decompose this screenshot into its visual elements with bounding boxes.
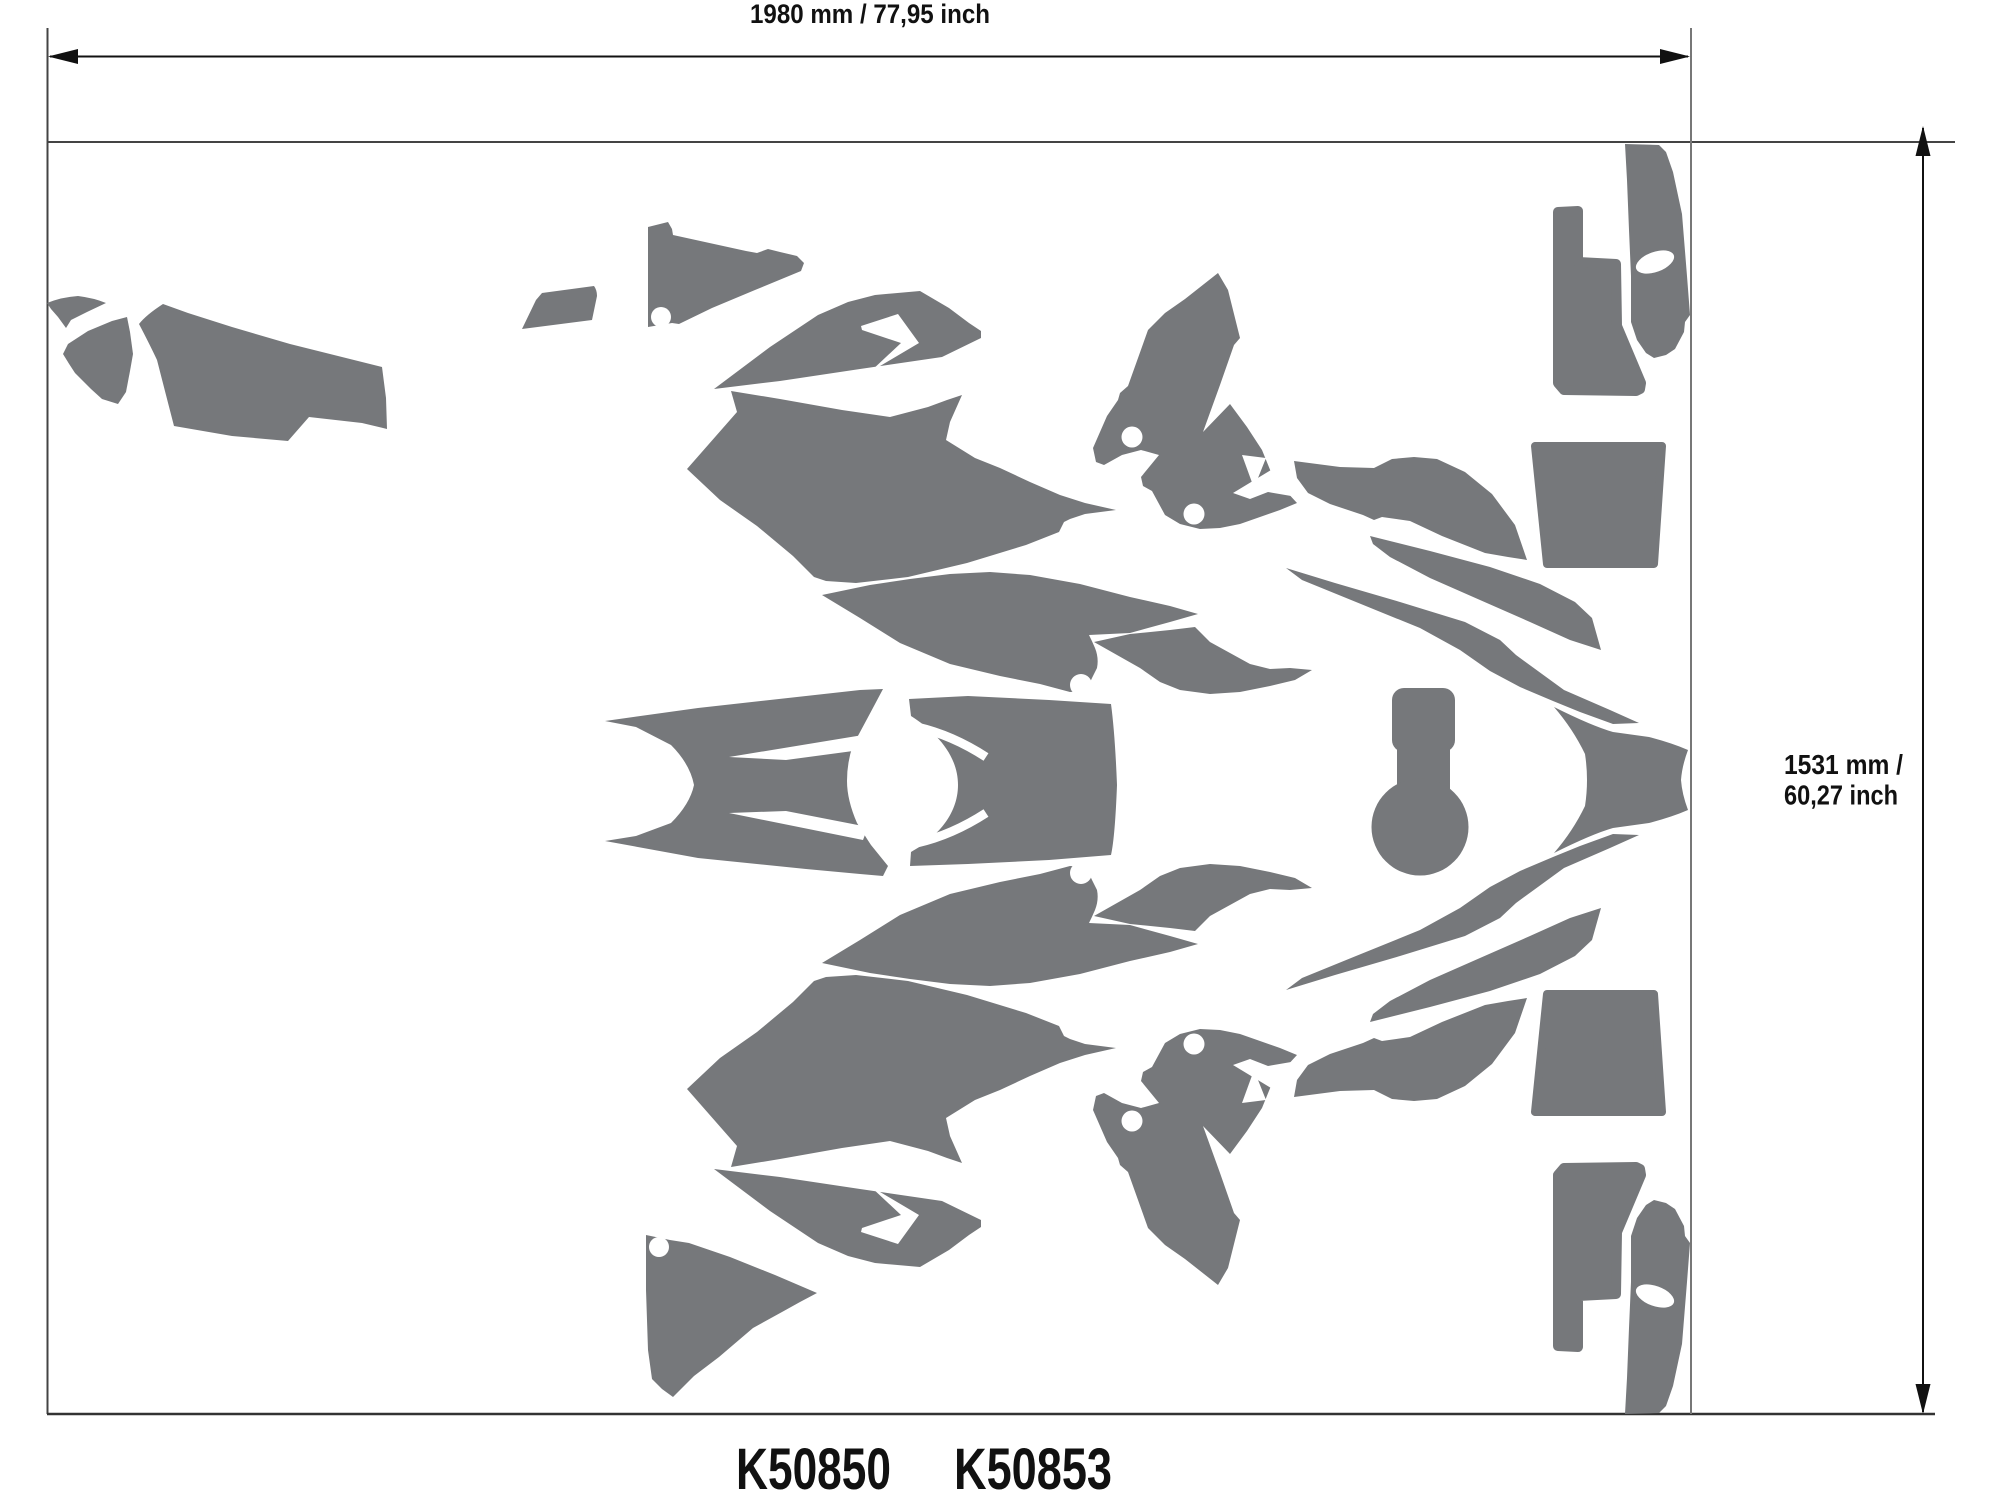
svg-text:1531 mm /: 1531 mm / [1784, 749, 1903, 780]
svg-text:60,27 inch: 60,27 inch [1784, 780, 1898, 811]
svg-text:1980 mm / 77,95 inch: 1980 mm / 77,95 inch [750, 0, 990, 29]
svg-text:K50853: K50853 [954, 1437, 1112, 1500]
svg-text:K50850: K50850 [736, 1437, 891, 1500]
